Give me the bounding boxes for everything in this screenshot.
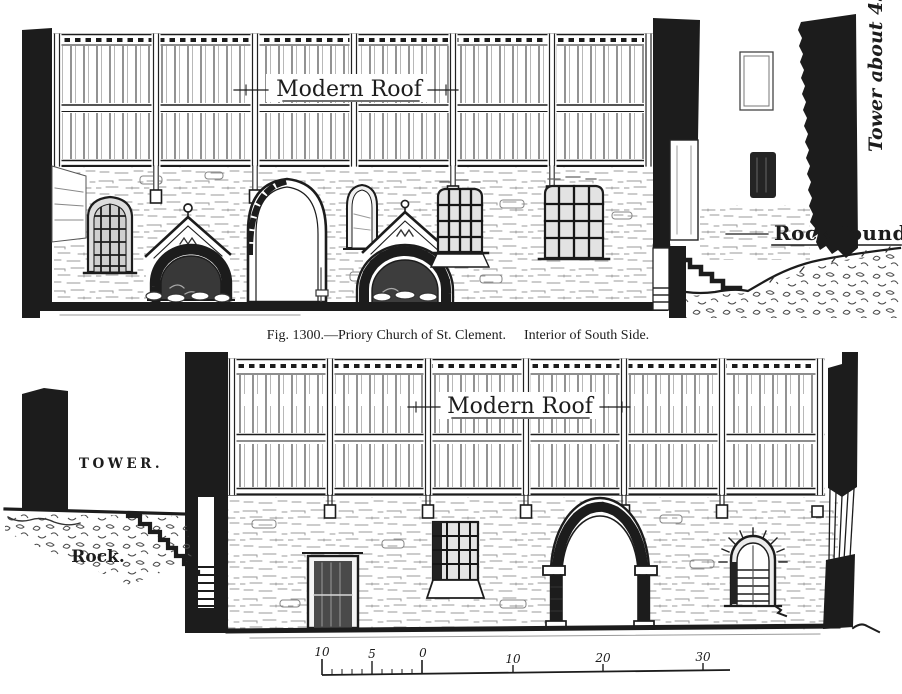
scale-tick-label: 20	[594, 651, 611, 665]
upper-latticed-window-1	[431, 180, 489, 267]
upper-west-wall-section	[22, 28, 52, 318]
upper-drawing: Modern Roof Tower about 45 f Rock founda…	[22, 0, 902, 318]
tower-label-text: TOWER.	[79, 456, 163, 472]
lower-roof-label-text: Modern Roof	[447, 394, 595, 419]
scale-bar: 10 5 0 10 20 30	[314, 645, 730, 675]
tower-height-note-text: Tower about 45 f	[865, 0, 887, 152]
upper-roof-label: Modern Roof	[234, 74, 458, 102]
lower-east-wall-section	[823, 352, 879, 632]
upper-window-reveal	[52, 166, 86, 242]
scale-tick-label: 10	[314, 645, 330, 659]
lower-latticed-window	[427, 522, 484, 598]
upper-lancet-window	[84, 197, 136, 273]
figure-caption-subtitle: Interior of South Side.	[524, 328, 649, 343]
figure-1300-plate: Modern Roof Tower about 45 f Rock founda…	[0, 0, 902, 694]
upper-east-pier	[653, 18, 700, 246]
upper-roof-label-text: Modern Roof	[276, 77, 424, 102]
lower-roof	[228, 358, 825, 498]
scale-tick-label: 30	[695, 650, 711, 664]
rock-label-text: Rock.	[71, 547, 125, 567]
engraving-plate: Modern Roof Tower about 45 f Rock founda…	[0, 0, 902, 694]
figure-caption-title: Fig. 1300.—Priory Church of St. Clement.	[267, 328, 506, 343]
scale-tick-label: 10	[505, 652, 521, 666]
rock-foundation-label-text: Rock foundati	[774, 221, 902, 245]
lower-drawing: TOWER. Rock.	[5, 352, 879, 638]
lower-roof-label: Modern Roof	[408, 392, 630, 419]
lower-tower-wall-section	[22, 388, 68, 510]
lower-door	[303, 553, 362, 628]
page: { "colors": { "paper": "#ffffff", "ink":…	[0, 0, 902, 694]
figure-caption: Fig. 1300.—Priory Church of St. Clement.…	[267, 328, 649, 343]
scale-tick-label: 5	[368, 647, 376, 661]
scale-tick-label: 0	[419, 646, 427, 660]
upper-pointed-arch	[248, 179, 328, 302]
lower-west-wall-section	[185, 352, 228, 633]
upper-ground-line	[30, 302, 668, 311]
upper-tower-note: Tower about 45 f	[865, 0, 887, 152]
upper-latticed-window-2	[539, 177, 609, 259]
tower-doorway	[750, 152, 776, 198]
